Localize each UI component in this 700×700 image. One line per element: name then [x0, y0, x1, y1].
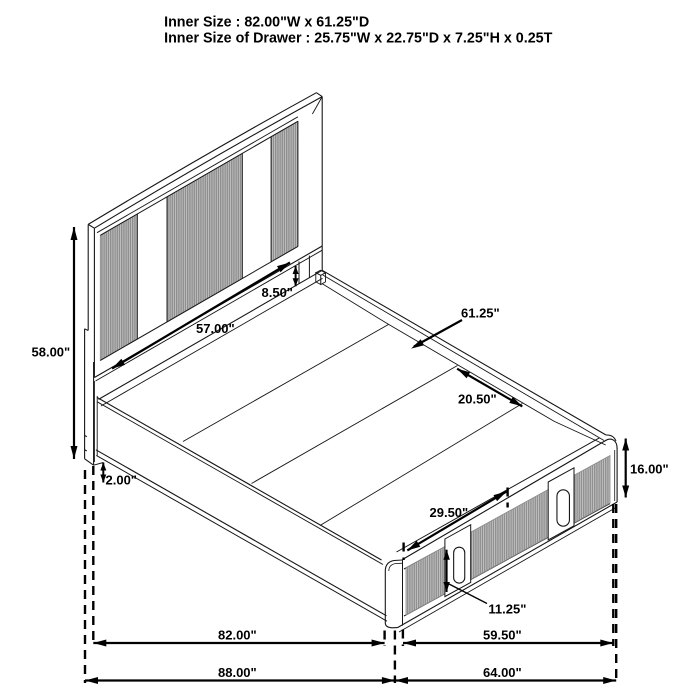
- svg-text:8.50": 8.50": [262, 285, 293, 300]
- svg-text:64.00": 64.00": [483, 665, 522, 680]
- svg-text:20.50": 20.50": [458, 392, 497, 407]
- svg-text:11.25": 11.25": [488, 602, 526, 617]
- svg-text:16.00": 16.00": [630, 462, 669, 477]
- svg-text:59.50": 59.50": [483, 628, 522, 643]
- svg-text:82.00": 82.00": [218, 628, 257, 643]
- svg-text:2.00": 2.00": [106, 473, 137, 488]
- svg-text:29.50": 29.50": [430, 505, 469, 520]
- svg-text:61.25": 61.25": [461, 306, 500, 321]
- svg-text:57.00": 57.00": [196, 321, 235, 336]
- svg-text:88.00": 88.00": [218, 665, 257, 680]
- svg-text:Inner Size of Drawer : 25.75"W: Inner Size of Drawer : 25.75"W x 22.75"D…: [164, 31, 553, 47]
- svg-text:Inner Size : 82.00"W x 61.25"D: Inner Size : 82.00"W x 61.25"D: [164, 15, 369, 31]
- svg-text:58.00": 58.00": [32, 344, 71, 359]
